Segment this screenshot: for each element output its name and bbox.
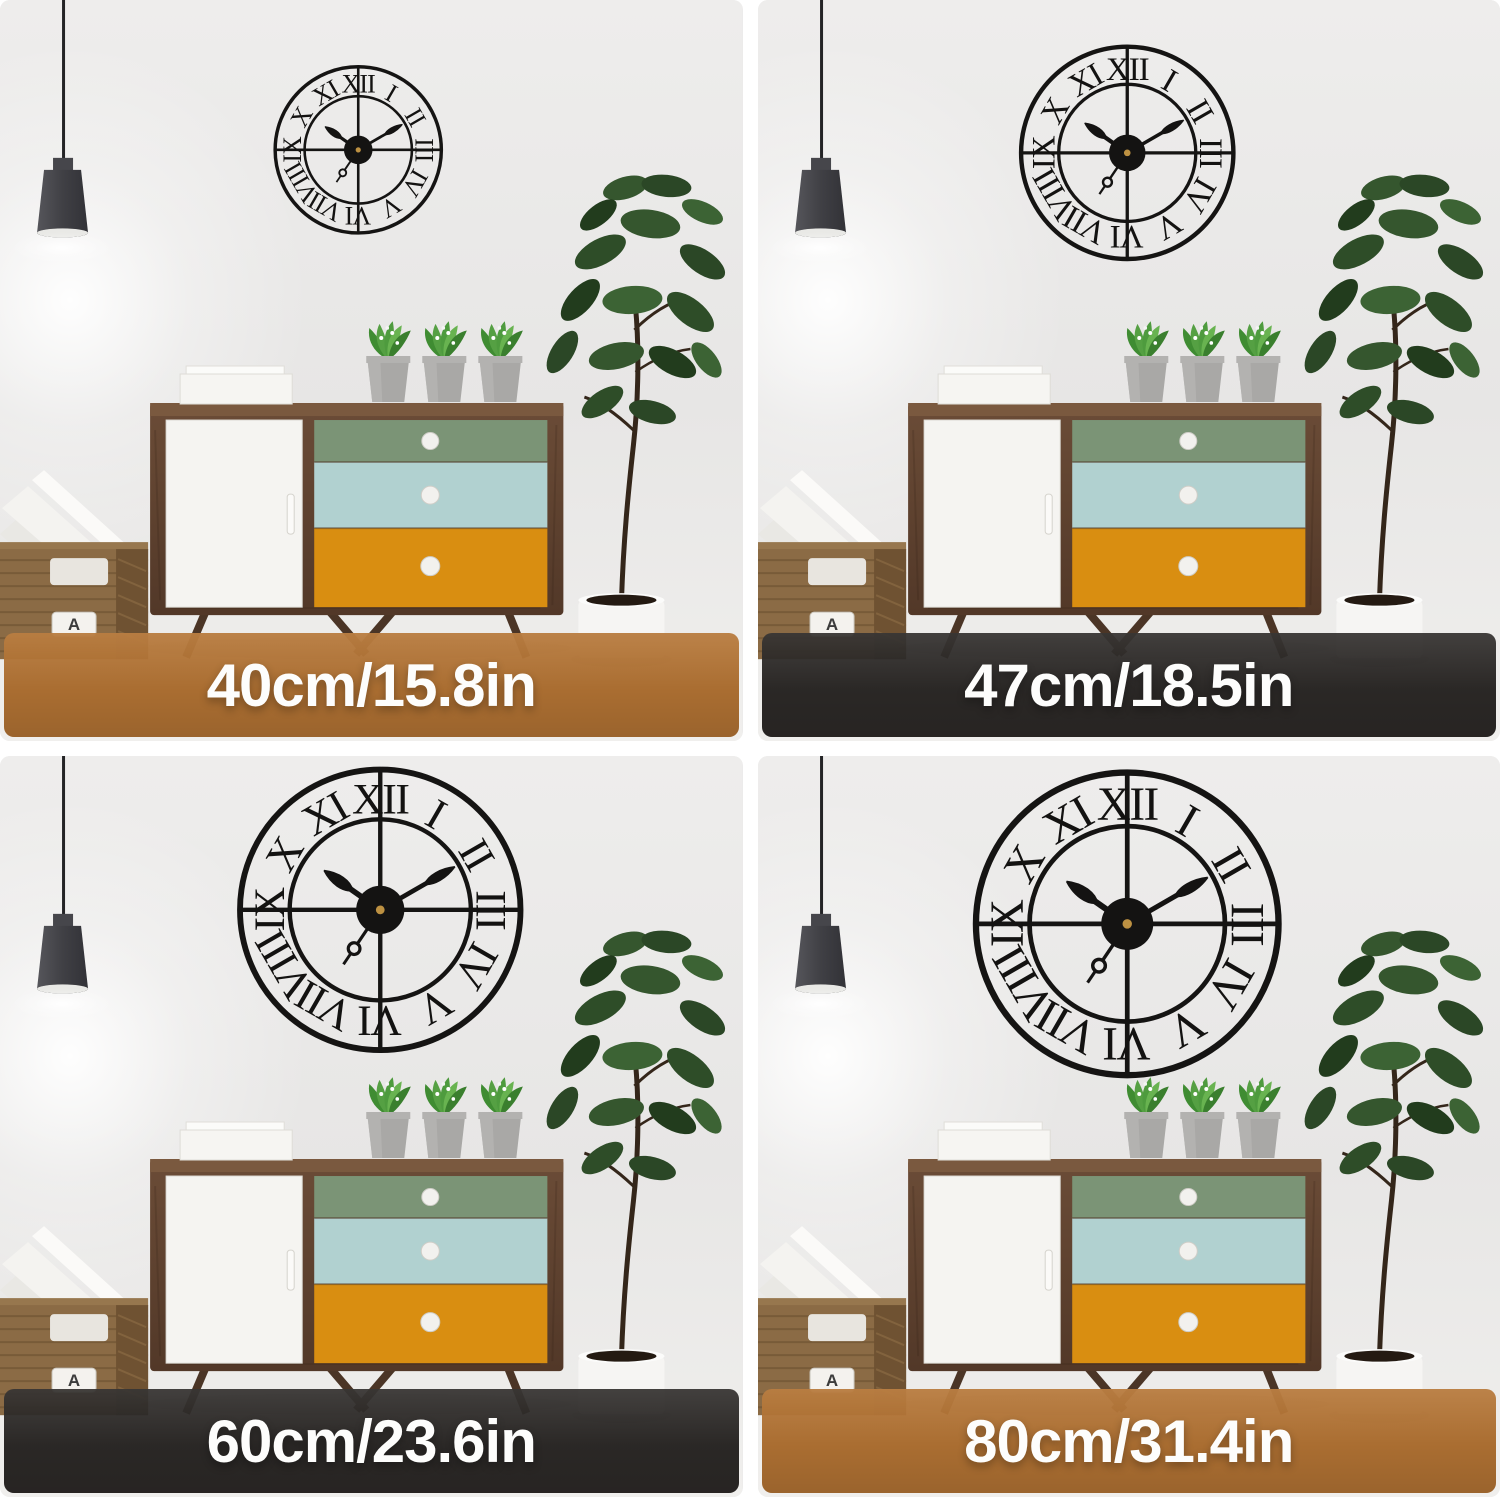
svg-text:III: III	[1220, 903, 1272, 946]
clock-center-hub	[344, 136, 373, 165]
lamp-shade	[37, 170, 88, 233]
clock-hub-pin	[376, 905, 385, 914]
basket-label-text: A	[825, 1371, 837, 1390]
svg-text:VI: VI	[358, 996, 402, 1044]
lamp-glow	[768, 988, 872, 1020]
svg-text:VI: VI	[1103, 1017, 1151, 1069]
wall-clock: XIIIIIIIIIVVVIVIIVIIIIXXXI	[275, 67, 441, 233]
basket-handle-cutout	[808, 558, 866, 585]
books-stack	[180, 366, 292, 404]
drawer-knob-bottom	[421, 557, 440, 576]
lamp-glow	[10, 988, 114, 1020]
basket-label-text: A	[68, 1371, 80, 1390]
sideboard-door-handle	[287, 494, 294, 534]
svg-text:III: III	[467, 890, 515, 930]
clock-hub-pin	[1122, 919, 1131, 928]
drawer-knob-top	[422, 433, 439, 450]
drawer-knob-middle	[1179, 1242, 1197, 1260]
svg-text:IX: IX	[278, 136, 307, 163]
sideboard-door	[166, 1176, 302, 1363]
lamp-shade	[795, 170, 846, 233]
sideboard-door	[924, 1176, 1060, 1363]
svg-text:III: III	[409, 138, 438, 162]
drawer-knob-bottom	[1178, 557, 1197, 576]
quadrant-40cm: XIIIIIIIIIVVVIVIIVIIIIXXXI	[0, 0, 743, 741]
clock-hub-pin	[356, 147, 361, 152]
svg-text:IX: IX	[982, 899, 1034, 947]
drawer-knob-top	[1179, 433, 1196, 450]
svg-text:XII: XII	[1105, 51, 1148, 88]
svg-text:III: III	[1192, 138, 1229, 168]
wall-clock: XIIIIIIIIIVVVIVIIVIIIIXXXI	[1021, 47, 1233, 259]
svg-text:IX: IX	[1025, 135, 1062, 169]
wall-clock: XIIIIIIIIIVVVIVIIVIIIIXXXI	[975, 773, 1278, 1076]
lamp-cord	[62, 0, 65, 170]
wall-clock: XIIIIIIIIIVVVIVIIVIIIIXXXI	[240, 770, 521, 1051]
size-label-text: 60cm/23.6in	[207, 1407, 536, 1476]
plant-soil	[586, 1351, 656, 1362]
size-label-text: 40cm/15.8in	[207, 651, 536, 720]
svg-text:XII: XII	[342, 70, 376, 99]
drawer-knob-bottom	[1178, 1313, 1197, 1332]
lamp-glow	[10, 232, 114, 264]
svg-text:VI: VI	[1110, 218, 1143, 255]
room-scene: XIIIIIIIIIVVVIVIIVIIIIXXXI	[758, 0, 1500, 741]
lamp-neck	[811, 158, 831, 171]
basket-handle-cutout	[808, 1314, 866, 1341]
lamp-neck	[53, 914, 73, 927]
basket-label-text: A	[68, 615, 80, 634]
drawer-knob-bottom	[421, 1313, 440, 1332]
plant-soil	[1344, 1351, 1414, 1362]
books-stack	[938, 1122, 1050, 1160]
drawer-knob-top	[1179, 1189, 1196, 1206]
lamp-shade	[795, 926, 846, 989]
books-stack	[938, 366, 1050, 404]
drawer-knob-middle	[1179, 486, 1197, 504]
clock-center-hub	[1101, 898, 1153, 950]
lamp-cord	[820, 756, 823, 926]
sideboard-door-handle	[1045, 494, 1052, 534]
lamp-glow	[768, 232, 872, 264]
room-scene: XIIIIIIIIIVVVIVIIVIIIIXXXI	[0, 0, 743, 741]
plant-soil	[586, 595, 656, 606]
basket-handle-cutout	[50, 1314, 108, 1341]
size-label-bar: 80cm/31.4in	[762, 1389, 1497, 1493]
clock-hub-pin	[1123, 150, 1130, 157]
size-label-text: 47cm/18.5in	[964, 651, 1293, 720]
drawer-knob-top	[422, 1189, 439, 1206]
sideboard-door-handle	[1045, 1250, 1052, 1290]
lamp-cord	[820, 0, 823, 170]
size-label-bar: 40cm/15.8in	[4, 633, 739, 737]
lamp-neck	[811, 914, 831, 927]
svg-text:VI: VI	[345, 201, 371, 230]
room-scene: XIIIIIIIIIVVVIVIIVIIIIXXXI	[758, 756, 1500, 1497]
quadrant-47cm: XIIIIIIIIIVVVIVIIVIIIIXXXI	[758, 0, 1500, 741]
lamp-cord	[62, 756, 65, 926]
svg-text:XII: XII	[1096, 779, 1158, 831]
books-stack	[180, 1122, 292, 1160]
lamp-neck	[53, 158, 73, 171]
sideboard-door-handle	[287, 1250, 294, 1290]
size-label-bar: 47cm/18.5in	[762, 633, 1497, 737]
clock-center-hub	[1109, 135, 1145, 171]
drawer-knob-middle	[421, 1242, 439, 1260]
room-scene: XIIIIIIIIIVVVIVIIVIIIIXXXI	[0, 756, 743, 1497]
plant-soil	[1344, 595, 1414, 606]
clock-center-hub	[356, 886, 404, 934]
sideboard-door	[166, 420, 302, 607]
lamp-shade	[37, 926, 88, 989]
sideboard-door	[924, 420, 1060, 607]
size-label-bar: 60cm/23.6in	[4, 1389, 739, 1493]
svg-text:XII: XII	[352, 775, 409, 823]
svg-text:IX: IX	[246, 887, 294, 931]
quadrant-80cm: XIIIIIIIIIVVVIVIIVIIIIXXXI	[758, 756, 1500, 1497]
basket-label-text: A	[825, 615, 837, 634]
size-comparison-grid: XIIIIIIIIIVVVIVIIVIIIIXXXI	[0, 0, 1500, 1497]
size-label-text: 80cm/31.4in	[964, 1407, 1293, 1476]
drawer-knob-middle	[421, 486, 439, 504]
quadrant-60cm: XIIIIIIIIIVVVIVIIVIIIIXXXI	[0, 756, 743, 1497]
basket-handle-cutout	[50, 558, 108, 585]
